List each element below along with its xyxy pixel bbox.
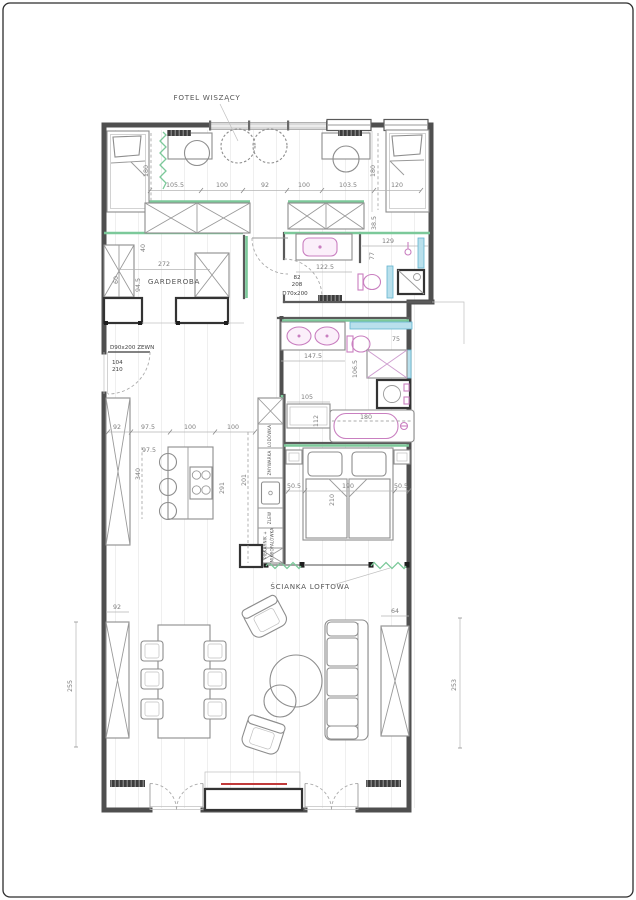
radiator-kids-right <box>338 130 362 136</box>
svg-text:100: 100 <box>184 424 196 431</box>
tiles-bath1-a <box>418 238 424 268</box>
vanity-bath2 <box>281 322 345 350</box>
dishwasher-label: ZMYWARKA <box>267 451 272 476</box>
dim-106-5: 106.5 <box>352 360 359 378</box>
svg-text:190: 190 <box>342 483 354 490</box>
dining-table <box>158 625 210 738</box>
svg-text:180: 180 <box>370 165 377 177</box>
dim-122-5: 122.5 <box>316 264 334 271</box>
cabinet-bath2 <box>287 404 330 428</box>
tiles-bath2-top <box>350 322 412 329</box>
svg-text:255: 255 <box>67 680 74 692</box>
svg-text:50.5: 50.5 <box>287 483 301 490</box>
svg-text:291: 291 <box>219 482 226 494</box>
svg-text:38.5: 38.5 <box>371 216 378 230</box>
dim-77: 77 <box>369 252 376 260</box>
floor-plan-svg: FOTEL WISZĄCY 105.5 100 92 100 103.5 120… <box>0 0 636 900</box>
dim-105: 105 <box>301 394 313 401</box>
bath-door-height: 208 <box>292 282 303 288</box>
wardrobe-row-left <box>145 203 250 233</box>
tv-wall-block <box>205 789 302 810</box>
garderoba-label: GARDEROBA <box>148 277 200 286</box>
bath-door-spec: D70x200 <box>282 291 308 297</box>
svg-text:100: 100 <box>227 424 239 431</box>
living-cabinet-right <box>381 626 409 736</box>
dim-180-tub: 180 <box>360 414 372 421</box>
svg-text:92: 92 <box>261 182 269 189</box>
entrance-opening-height: 210 <box>112 367 123 373</box>
washer-bath1 <box>398 270 424 294</box>
svg-text:94.5: 94.5 <box>135 278 142 292</box>
fridge-label: LODÓWKA <box>267 425 272 447</box>
dim-147-5: 147.5 <box>304 353 322 360</box>
nightstand-left <box>286 450 302 464</box>
wardrobe-row-right <box>288 203 364 229</box>
svg-text:340: 340 <box>135 468 142 480</box>
entrance-opening-width: 104 <box>112 360 123 366</box>
svg-text:92: 92 <box>113 424 121 431</box>
svg-text:180: 180 <box>143 165 150 177</box>
kitchen-cabinet-run: LODÓWKA ZMYWARKA ZLEW PIEKARNIK + MIKROF… <box>258 398 283 563</box>
svg-text:100: 100 <box>216 182 228 189</box>
bed-kids-right <box>386 130 429 212</box>
radiator-living-left <box>110 780 145 787</box>
dim-75: 75 <box>392 336 400 343</box>
nightstand-right <box>394 450 410 464</box>
svg-text:40: 40 <box>140 244 147 252</box>
sink-label: ZLEW <box>267 512 272 524</box>
vanity-bath1 <box>296 234 352 260</box>
radiator-kids-left <box>167 130 191 136</box>
dim-129: 129 <box>382 238 394 245</box>
svg-text:97.5: 97.5 <box>141 424 155 431</box>
oven-label-2: MIKROFALÓWKA <box>270 528 275 563</box>
radiator-living-right <box>366 780 401 787</box>
dim-112: 112 <box>313 415 320 427</box>
sofa <box>325 620 368 740</box>
svg-text:50.5: 50.5 <box>394 483 408 490</box>
master-bedroom: 50.5 190 50.5 210 <box>286 448 411 540</box>
radiator-bath1 <box>318 295 342 301</box>
entry-tall-cabinet <box>106 398 130 545</box>
svg-text:100: 100 <box>298 182 310 189</box>
drawing-sheet: FOTEL WISZĄCY 105.5 100 92 100 103.5 120… <box>0 0 636 900</box>
svg-text:201: 201 <box>241 474 248 486</box>
tiles-bath1-b <box>387 266 393 298</box>
kitchen-end-unit <box>240 545 262 567</box>
kitchen-island <box>160 447 214 520</box>
oven-label-1: PIEKARNIK + <box>263 531 268 559</box>
washer-bath2 <box>377 380 410 408</box>
svg-text:272: 272 <box>158 261 170 268</box>
svg-text:97.5: 97.5 <box>142 447 156 454</box>
double-bed <box>303 448 393 540</box>
shower-bath2 <box>367 350 407 378</box>
svg-text:210: 210 <box>329 494 336 506</box>
dim-64: 64 <box>391 608 399 615</box>
svg-text:120: 120 <box>391 182 403 189</box>
hanging-chair-label: FOTEL WISZĄCY <box>174 93 241 102</box>
living-cabinet-left <box>106 622 129 738</box>
svg-text:105.5: 105.5 <box>166 182 184 189</box>
svg-text:253: 253 <box>451 679 458 691</box>
entrance-door-spec: D90x200 ZEWN <box>110 345 154 351</box>
svg-text:103.5: 103.5 <box>339 182 357 189</box>
svg-text:60: 60 <box>113 276 120 284</box>
bath-door-width: 82 <box>293 275 300 281</box>
dim-92-living: 92 <box>113 604 121 611</box>
